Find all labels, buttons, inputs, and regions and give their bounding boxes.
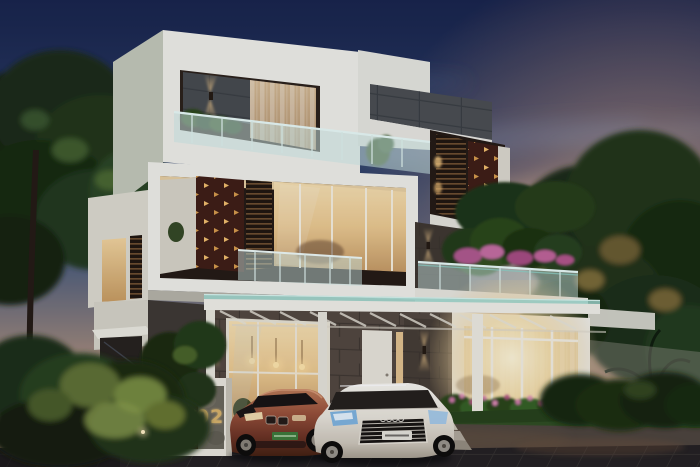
scene-canvas: 02 02 xyxy=(0,0,700,467)
dusk-tint-overlay xyxy=(0,0,700,467)
villa-render-image: 02 02 xyxy=(0,0,700,467)
